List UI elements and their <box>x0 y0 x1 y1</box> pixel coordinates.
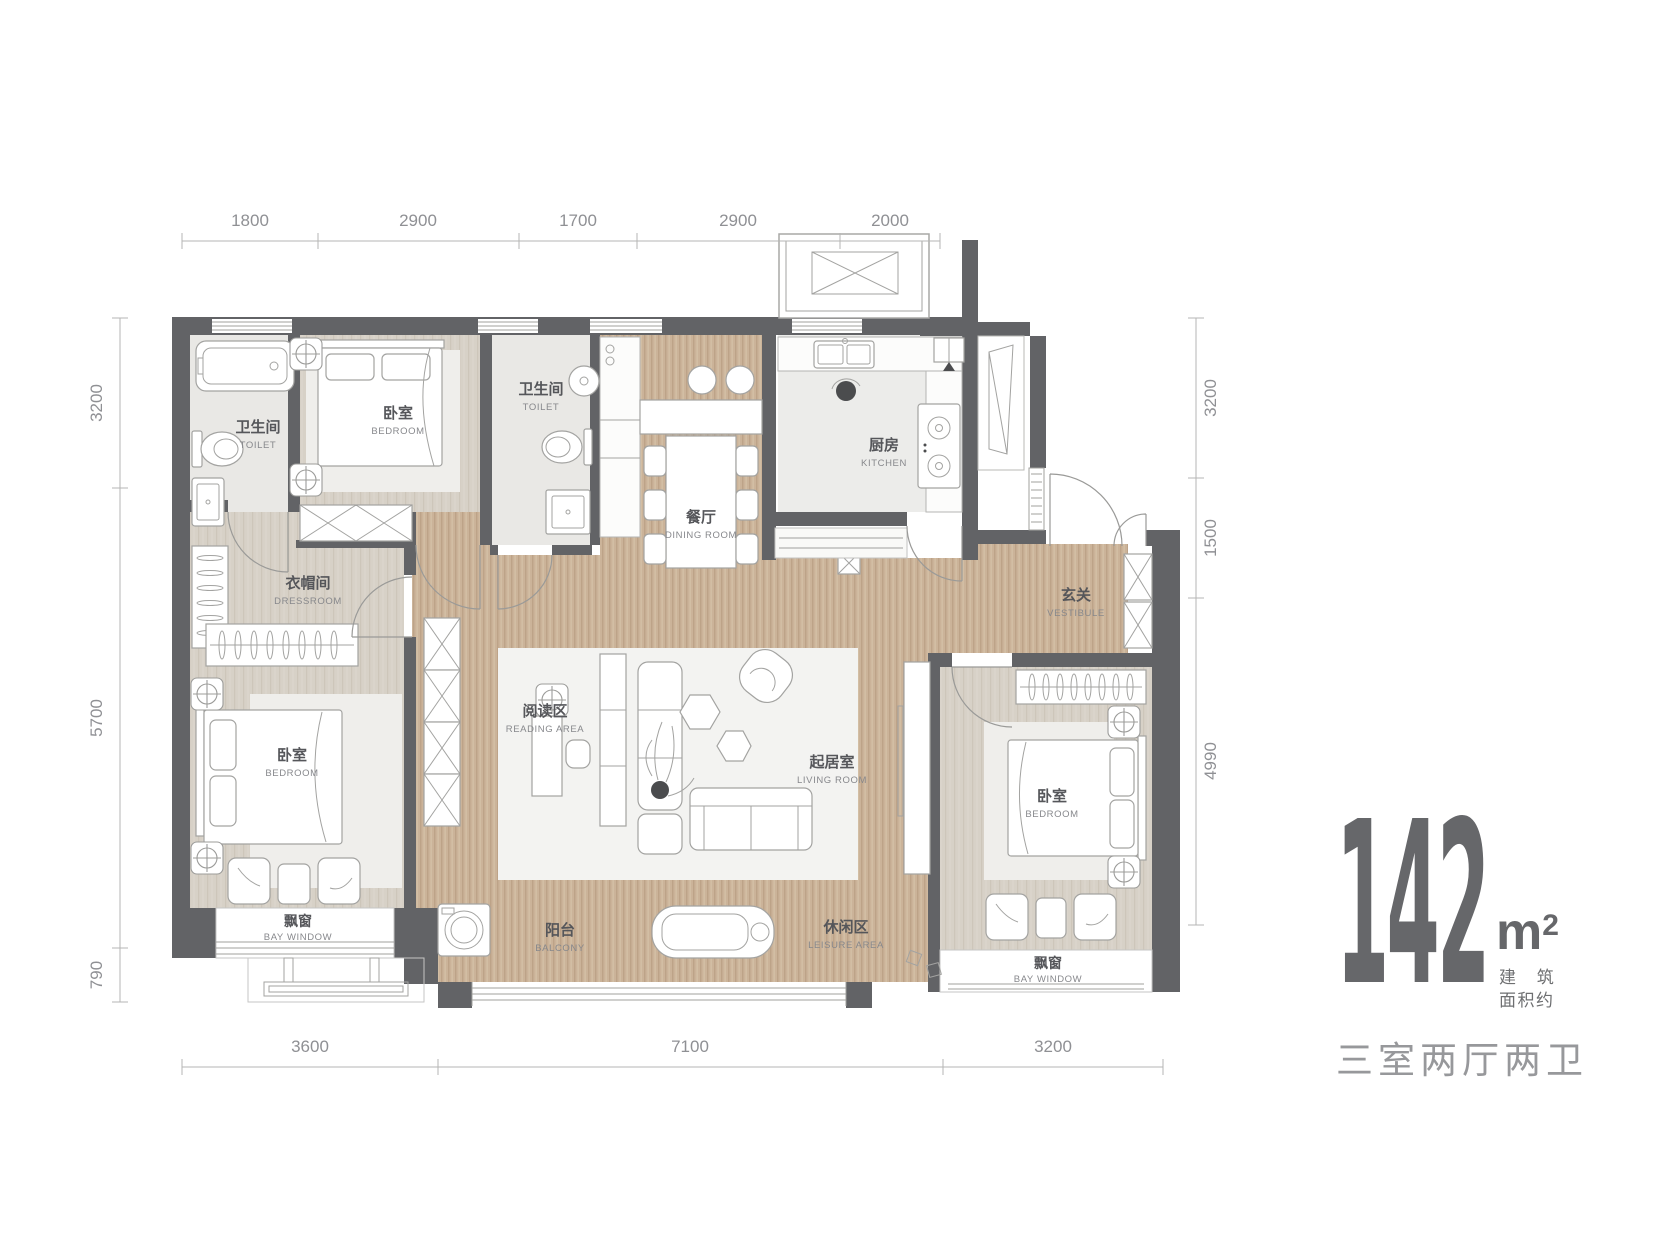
dim-label: 5700 <box>87 699 106 737</box>
room-name-cn: 阳台 <box>545 921 575 939</box>
window-icon <box>1029 468 1044 530</box>
dim-label: 3600 <box>291 1037 329 1056</box>
room-label-toilet-b: 卫生间 TOILET <box>518 380 563 413</box>
room-name-cn: 厨房 <box>869 436 899 454</box>
vestibule-fixtures <box>1124 554 1152 648</box>
room-name-en: TOILET <box>240 440 277 451</box>
room-name-cn: 起居室 <box>808 753 854 771</box>
dim-label: 3200 <box>1034 1037 1072 1056</box>
room-name-cn: 卫生间 <box>518 380 563 398</box>
desk-chair-icon <box>566 740 590 768</box>
room-name-cn: 卧室 <box>277 746 307 764</box>
kitchen-sink-icon <box>814 339 874 369</box>
room-name-en: BEDROOM <box>1025 809 1078 820</box>
dim-label: 2900 <box>399 211 437 230</box>
bay-seat-icon <box>986 894 1116 940</box>
tall-panel <box>978 336 1024 470</box>
balcony-window <box>472 982 846 1006</box>
dim-label: 790 <box>87 961 106 989</box>
room-name-en: BEDROOM <box>265 768 318 779</box>
washing-machine-icon <box>438 904 490 956</box>
stool-icon <box>726 366 754 394</box>
room-name-en: VESTIBULE <box>1047 608 1105 619</box>
sideboard-icon <box>600 337 640 537</box>
layout-type: 三室两厅两卫 <box>1336 1030 1588 1084</box>
window-icon <box>478 319 538 333</box>
room-name-cn: 休闲区 <box>822 918 868 936</box>
dim-label: 1800 <box>231 211 269 230</box>
room-name-cn: 卧室 <box>1037 787 1067 805</box>
room-name-en: BALCONY <box>535 943 585 954</box>
bathtub-icon <box>196 341 294 391</box>
light-symbol-icon <box>290 464 322 496</box>
shelf-icon <box>600 654 626 826</box>
window-icon <box>792 319 862 333</box>
stove-icon <box>918 404 960 488</box>
lounge-chair-icon <box>652 906 774 958</box>
bay-seat-icon <box>228 858 360 904</box>
room-name-en: LEISURE AREA <box>808 940 884 951</box>
room-name-cn: 餐厅 <box>686 508 716 526</box>
area-unit: m2 <box>1496 900 1559 958</box>
dim-label: 4990 <box>1201 742 1220 780</box>
dimension-bottom: 3600 7100 3200 <box>182 1037 1163 1075</box>
stool-icon <box>688 366 716 394</box>
dimension-right: 3200 1500 4990 <box>1188 318 1220 925</box>
light-symbol-icon <box>1108 706 1140 738</box>
floor-plan-page: 1800 2900 1700 2900 2000 3200 5700 790 3… <box>0 0 1668 1251</box>
room-name-cn: 阅读区 <box>522 702 567 720</box>
area-value: 142 <box>1336 793 1488 1018</box>
room-name-cn: 飘窗 <box>284 913 312 929</box>
dim-label: 2000 <box>871 211 909 230</box>
area-unit-m: m <box>1496 903 1542 961</box>
dim-label: 1700 <box>559 211 597 230</box>
room-name-en: LIVING ROOM <box>797 775 867 786</box>
window-icon <box>212 319 292 333</box>
hanger-rack-icon <box>206 624 358 666</box>
bookshelf-icon <box>424 618 460 826</box>
dim-label: 3200 <box>1201 379 1220 417</box>
room-name-en: BEDROOM <box>371 426 424 437</box>
washbasin-icon <box>546 490 590 534</box>
ac-platform <box>248 958 424 1002</box>
toilet-icon <box>192 431 243 467</box>
wardrobe-icon <box>300 505 412 541</box>
room-name-en: BAY WINDOW <box>264 932 332 943</box>
room-name-en: BAY WINDOW <box>1014 974 1082 985</box>
room-name-cn: 衣帽间 <box>285 574 330 592</box>
room-name-en: DINING ROOM <box>665 530 737 541</box>
light-symbol-icon <box>191 678 223 710</box>
area-note-line1: 建 筑 <box>1499 966 1562 989</box>
dining-table-icon <box>644 436 758 568</box>
room-label-toilet-a: 卫生间 TOILET <box>235 418 280 451</box>
room-name-en: KITCHEN <box>861 458 907 469</box>
room-name-en: DRESSROOM <box>274 596 342 607</box>
entry-door-icon <box>1114 514 1146 546</box>
area-note: 建 筑 面积约 <box>1499 966 1562 1012</box>
light-symbol-icon <box>290 338 322 370</box>
dim-label: 3200 <box>87 384 106 422</box>
window-icon <box>590 319 662 333</box>
dim-label: 7100 <box>671 1037 709 1056</box>
area-unit-sup: 2 <box>1542 909 1559 942</box>
room-label-bay-right: 飘窗 BAY WINDOW <box>1014 955 1082 985</box>
light-symbol-icon <box>1108 856 1140 888</box>
wardrobe-icon <box>1016 670 1146 704</box>
room-label-bay-left: 飘窗 BAY WINDOW <box>264 913 332 943</box>
dimension-left: 3200 5700 790 <box>87 318 128 1002</box>
entry-door-icon <box>1050 474 1122 546</box>
bay-window-right <box>906 950 1152 992</box>
bed-icon <box>316 340 444 466</box>
room-name-cn: 玄关 <box>1061 586 1091 604</box>
counter-icon <box>640 400 762 434</box>
equipment-balcony <box>779 234 929 318</box>
shoe-cabinet-icon <box>1124 554 1152 648</box>
area-note-line2: 面积约 <box>1499 989 1562 1012</box>
dim-label: 1500 <box>1201 519 1220 557</box>
light-symbol-icon <box>191 842 223 874</box>
room-name-en: READING AREA <box>506 724 585 735</box>
room-name-cn: 卫生间 <box>235 418 280 436</box>
kitchen-sliding-door <box>775 528 907 558</box>
sink-icon <box>569 366 599 396</box>
room-name-en: TOILET <box>523 402 560 413</box>
room-name-cn: 飘窗 <box>1034 955 1062 971</box>
room-name-cn: 卧室 <box>383 404 413 422</box>
toilet-icon <box>542 429 592 465</box>
sink-icon <box>192 478 224 526</box>
dim-label: 2900 <box>719 211 757 230</box>
bed-icon <box>1008 736 1146 860</box>
